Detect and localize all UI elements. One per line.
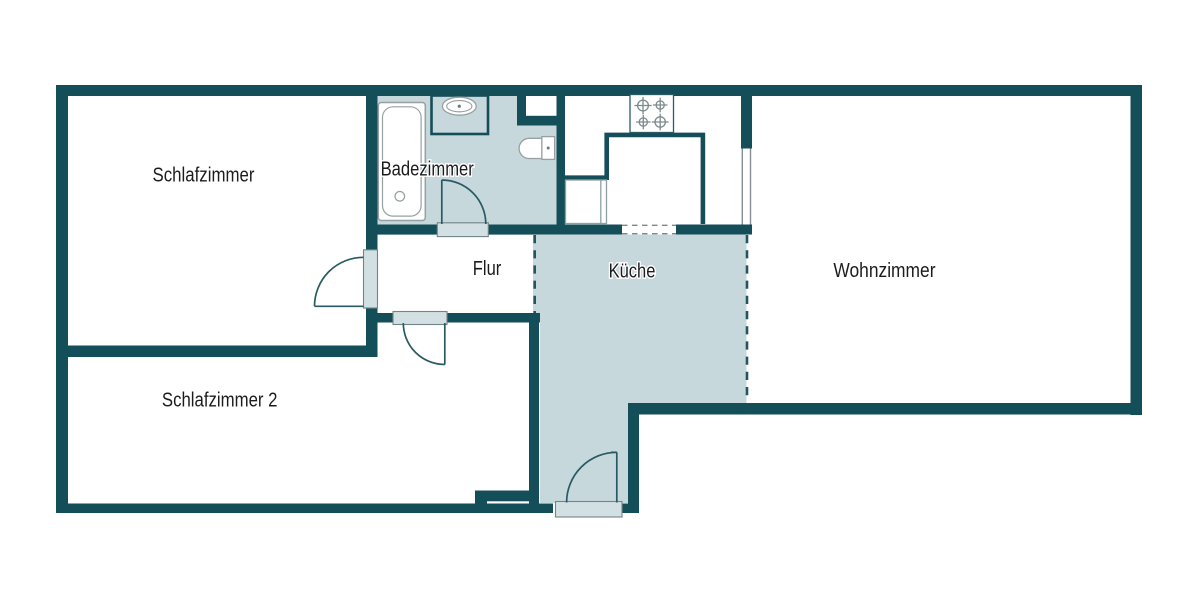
svg-text:Schlafzimmer: Schlafzimmer — [153, 164, 255, 186]
svg-text:Schlafzimmer 2: Schlafzimmer 2 — [162, 389, 278, 411]
svg-text:Küche: Küche — [609, 261, 656, 283]
svg-text:Flur: Flur — [473, 258, 502, 280]
svg-text:Wohnzimmer: Wohnzimmer — [833, 260, 935, 282]
svg-text:Badezimmer: Badezimmer — [381, 159, 474, 181]
